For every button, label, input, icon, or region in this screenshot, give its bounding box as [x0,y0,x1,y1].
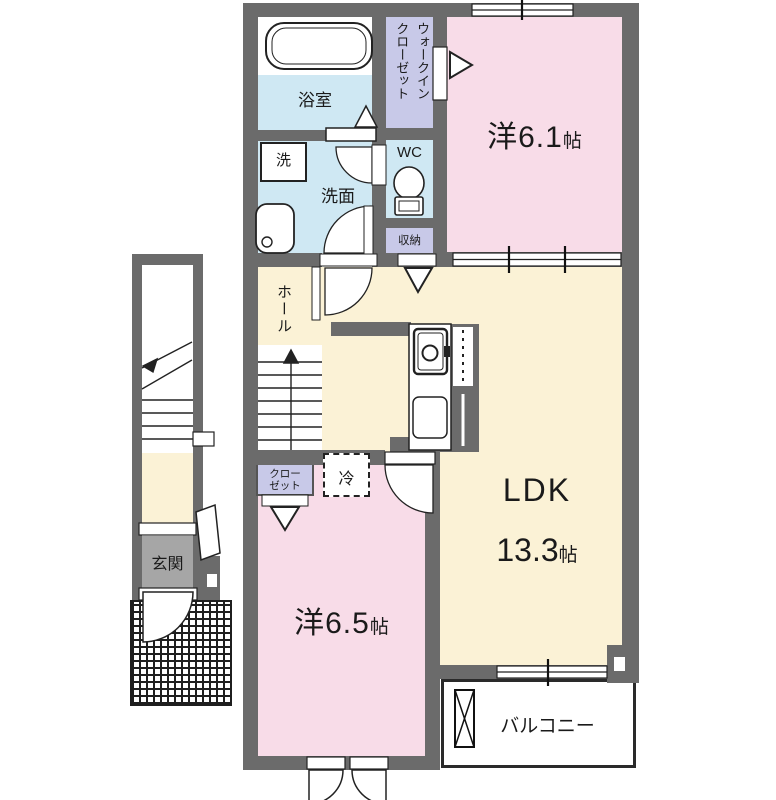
wall-washroom-bottom [243,253,322,267]
wic-label-line1: ウォークイン [415,22,430,100]
stairwell [142,265,193,453]
floorplan-canvas: 浴室 ウォークイン クローゼット 洋6.1帖 洗 洗面 WC 収納 ホール LD… [0,0,776,800]
room-bath-tub-area [258,17,372,75]
pipe-shaft-window [614,657,625,671]
wall-bedroom1-bottom [447,252,622,267]
laundry-label: 洗 [260,149,307,170]
wall-storage-bottom [376,253,447,267]
wall-hall-stub [331,322,411,336]
stair-landing [142,453,193,523]
stair-unit-wall-right [193,254,203,600]
bedroom2-size: 洋6.5 [294,607,370,640]
bedroom1-unit: 帖 [563,131,582,152]
wall-bedroom2-right [425,465,440,770]
hall-label: ホール [264,272,294,347]
closet-label-line1: クロー [269,468,301,480]
ldk-size: 13.3 [496,532,558,568]
bathroom-label: 浴室 [258,86,372,111]
stair-unit-wall-left [132,254,142,600]
wic-label-line2: クローゼット [394,22,409,100]
wall-wc-bottom [386,218,433,228]
bedroom1-label: 洋6.1帖 [447,112,622,156]
wall-kitchen-side [451,324,479,452]
wall-bottom-bedroom2 [243,756,440,770]
ldk-label: LDK [447,472,627,509]
wall-wic-bedroom1 [433,3,447,267]
wall-wet-column [372,3,386,267]
bedroom2-unit: 帖 [370,617,389,638]
storage-label: 収納 [386,232,433,248]
closet-label: クロー ゼット [256,468,314,492]
bedroom2-label: 洋6.5帖 [258,598,425,642]
wall-wic-bottom [386,128,433,140]
walk-in-closet-label: ウォークイン クローゼット [387,22,432,126]
wall-bath-washroom [243,130,374,141]
closet-label-line2: ゼット [269,480,301,492]
wall-right [622,3,639,683]
balcony-label: バルコニー [480,711,615,738]
wall-left [243,3,258,770]
bedroom1-size: 洋6.1 [487,121,563,154]
entrance-porch [130,600,232,706]
stair-unit-bump-window [207,574,217,587]
refrigerator-label: 冷 [323,465,370,489]
washroom-label: 洗面 [298,182,378,207]
wc-label: WC [386,144,433,161]
hall-stairs-area [258,345,322,450]
ldk-unit: 帖 [559,545,578,566]
ldk-size-label: 13.3帖 [447,532,627,569]
wall-bottom-ldk [440,665,622,679]
wall-bedroom2-door-jamb [433,450,440,465]
entrance-label: 玄関 [140,550,195,574]
